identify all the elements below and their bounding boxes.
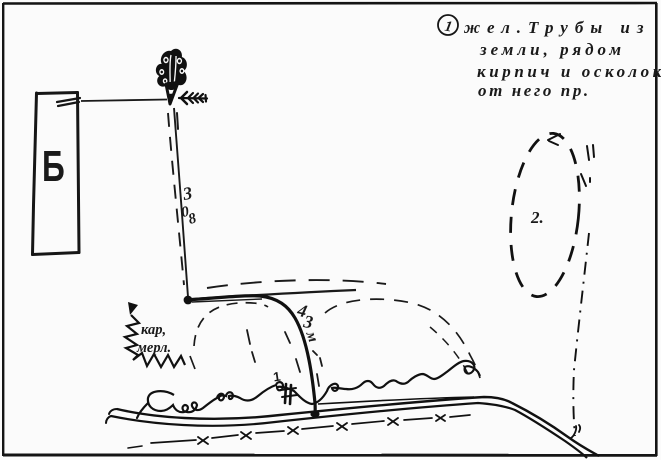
- svg-text:Б: Б: [42, 142, 65, 191]
- svg-text:земли, рядом: земли, рядом: [479, 40, 625, 59]
- svg-text:жел.Трубы из: жел.Трубы из: [463, 18, 650, 37]
- svg-text:2.: 2.: [530, 208, 544, 227]
- svg-text:мерл.: мерл.: [136, 340, 171, 356]
- svg-text:кар,: кар,: [141, 322, 166, 338]
- svg-text:кирпич и осколок: кирпич и осколок: [477, 62, 661, 81]
- svg-text:от него пр.: от него пр.: [478, 81, 591, 100]
